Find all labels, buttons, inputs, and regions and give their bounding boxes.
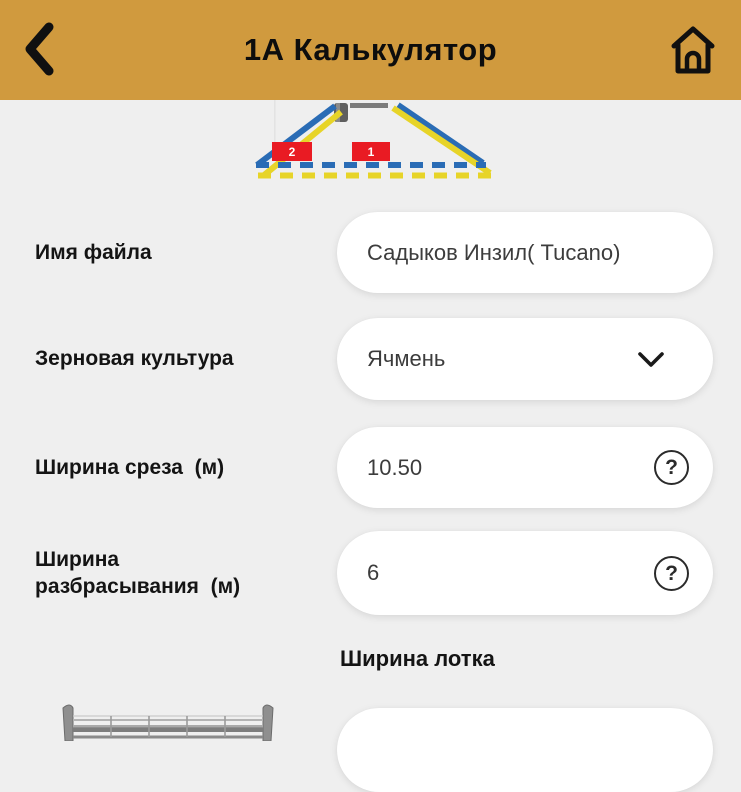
cut-width-help-button[interactable]: ? [654,450,689,485]
cut-width-label: Ширина среза (м) [35,427,275,508]
machine-bar [350,103,388,108]
file-name-value: Садыков Инзил( Tucano) [367,240,689,266]
harvester-header-illustration [60,700,276,746]
tray-width-input[interactable] [337,708,713,792]
marker-1-label: 1 [368,145,375,159]
crop-value: Ячмень [367,346,637,372]
crop-label: Зерновая культура [35,318,275,400]
back-chevron-icon [22,21,56,80]
back-button[interactable] [22,15,82,85]
cut-width-value: 10.50 [367,455,654,481]
cut-width-input[interactable]: 10.50 ? [337,427,713,508]
crop-dropdown[interactable]: Ячмень [337,318,713,400]
tray-width-label: Ширина лотка [340,646,495,672]
marker-1: 1 [352,142,390,161]
marker-2: 2 [272,142,312,161]
question-mark-icon: ? [665,457,678,478]
calculator-screen: 1А Калькулятор [0,0,741,741]
spread-width-input[interactable]: 6 ? [337,531,713,615]
page-title: 1А Калькулятор [0,0,741,100]
home-button[interactable] [659,15,719,85]
spread-pattern-diagram: 2 1 [0,100,741,185]
file-name-input[interactable]: Садыков Инзил( Tucano) [337,212,713,293]
app-header: 1А Калькулятор [0,0,741,100]
marker-2-label: 2 [289,145,296,159]
file-name-label: Имя файла [35,212,275,293]
home-icon [667,21,719,80]
question-mark-icon: ? [665,563,678,584]
spread-width-value: 6 [367,560,654,586]
spread-width-help-button[interactable]: ? [654,556,689,591]
chevron-down-icon [637,351,665,368]
spread-width-label: Ширина разбрасывания (м) [35,531,275,615]
